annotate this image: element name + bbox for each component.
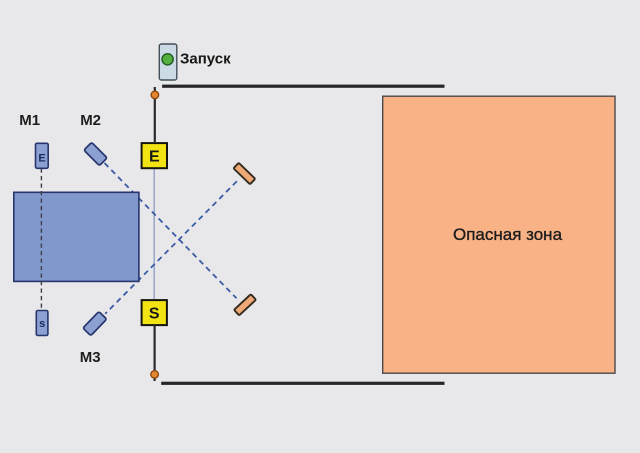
svg-text:M1: M1 [19,112,40,129]
svg-text:M2: M2 [80,112,101,129]
svg-text:Опасная зона: Опасная зона [453,225,563,244]
svg-text:Запуск: Запуск [180,50,231,67]
svg-text:M3: M3 [80,349,101,366]
svg-text:E: E [149,149,160,166]
svg-text:E: E [38,153,45,165]
svg-text:s: s [39,318,45,330]
svg-text:S: S [149,306,160,323]
